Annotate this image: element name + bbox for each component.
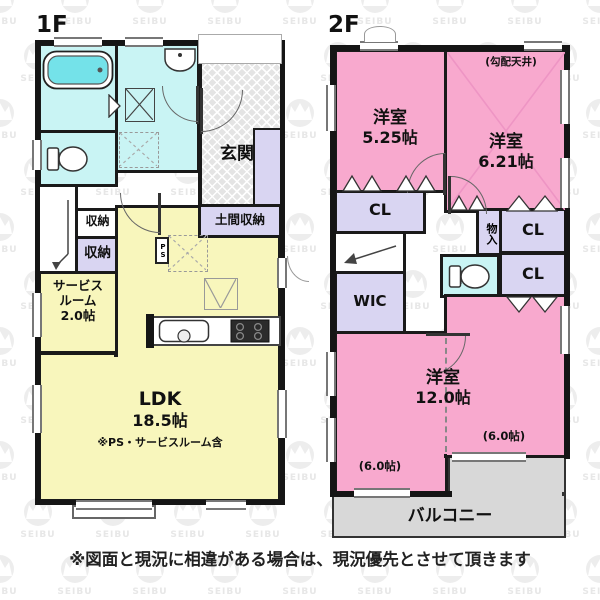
watermark-crest-icon <box>578 98 600 128</box>
watermark-crest-icon <box>0 0 22 14</box>
watermark-tile: SEIBU <box>428 0 472 27</box>
room3-sub-right: (6.0帖) <box>476 430 532 444</box>
window <box>277 390 287 438</box>
watermark-text: SEIBU <box>503 588 547 597</box>
service-room-line3: 2.0帖 <box>40 308 116 323</box>
watermark-text: SEIBU <box>578 246 600 255</box>
watermark-text: SEIBU <box>166 531 210 540</box>
room2-label: 洋室 6.21帖 <box>468 132 544 172</box>
watermark-text: SEIBU <box>16 531 60 540</box>
watermark-tile: SEIBU <box>278 0 322 27</box>
window <box>76 500 152 510</box>
watermark-text: SEIBU <box>128 588 172 597</box>
pipe-space: PS <box>155 237 169 264</box>
watermark-crest-icon <box>428 0 472 14</box>
storage2-label: 収納 <box>77 245 118 261</box>
watermark-crest-icon <box>0 98 22 128</box>
room3-label: 洋室 12.0帖 <box>398 368 488 408</box>
ldk-size: 18.5帖 <box>80 411 240 430</box>
watermark-text: SEIBU <box>203 588 247 597</box>
stairs-arrow-icon <box>44 192 74 272</box>
watermark-tile: SEIBU <box>578 440 600 483</box>
washbasin-icon <box>163 47 197 73</box>
watermark-tile: SEIBU <box>0 212 22 255</box>
watermark-text: SEIBU <box>0 588 22 597</box>
watermark-crest-icon <box>0 440 22 470</box>
watermark-text: SEIBU <box>0 246 22 255</box>
watermark-crest-icon <box>578 0 600 14</box>
window <box>326 418 336 462</box>
watermark-tile: SEIBU <box>578 0 600 27</box>
watermark-tile: SEIBU <box>203 0 247 27</box>
window <box>354 488 410 498</box>
watermark-text: SEIBU <box>578 360 600 369</box>
watermark-text: SEIBU <box>278 588 322 597</box>
ldk-label: LDK 18.5帖 ※PS・サービスルーム含 <box>80 388 240 449</box>
fridge-space-mark <box>168 235 208 272</box>
watermark-crest-icon <box>578 212 600 242</box>
room3-size: 12.0帖 <box>398 388 488 407</box>
window <box>206 500 246 510</box>
bath-door-icon <box>108 94 121 118</box>
room3-sub-left: (6.0帖) <box>352 460 408 474</box>
watermark-crest-icon <box>578 326 600 356</box>
room2-note: (勾配天井) <box>466 56 556 69</box>
stove-icon <box>230 319 270 343</box>
cl3-label: CL <box>501 264 565 283</box>
watermark-text: SEIBU <box>0 360 22 369</box>
watermark-text: SEIBU <box>503 18 547 27</box>
window <box>32 385 42 433</box>
watermark-crest-icon <box>578 440 600 470</box>
service-room-label: サービス ルーム 2.0帖 <box>40 278 116 323</box>
watermark-text: SEIBU <box>241 531 285 540</box>
bifold-door-icon <box>342 174 382 192</box>
window <box>560 70 570 124</box>
storage1-label: 収納 <box>77 214 118 228</box>
watermark-text: SEIBU <box>203 18 247 27</box>
window <box>560 306 570 354</box>
watermark-crest-icon <box>503 0 547 14</box>
service-room-line1: サービス <box>40 278 116 293</box>
back-door-opening <box>277 258 287 288</box>
watermark-tile: SEIBU <box>0 326 22 369</box>
watermark-crest-icon <box>0 212 22 242</box>
balcony-join <box>452 490 562 500</box>
porch <box>198 34 282 64</box>
watermark-text: SEIBU <box>0 132 22 141</box>
watermark-crest-icon <box>278 0 322 14</box>
watermark-tile: SEIBU <box>428 212 472 255</box>
watermark-tile: SEIBU <box>578 554 600 597</box>
bathtub-icon <box>42 50 114 90</box>
watermark-tile: SEIBU <box>578 326 600 369</box>
watermark-text: SEIBU <box>578 132 600 141</box>
table-mark <box>204 278 238 310</box>
disclaimer-text: ※図面と現況に相違がある場合は、現況優先とさせて頂きます <box>60 550 540 570</box>
window <box>32 140 42 170</box>
floor1-label: 1F <box>36 12 68 40</box>
watermark-tile: SEIBU <box>0 440 22 483</box>
window <box>326 352 336 396</box>
watermark-text: SEIBU <box>0 474 22 483</box>
watermark-text: SEIBU <box>428 18 472 27</box>
back-door-arc <box>287 256 309 282</box>
room1-size: 5.25帖 <box>352 128 428 147</box>
kitchen-sink-icon <box>158 319 210 343</box>
balcony-label: バルコニー <box>370 506 530 526</box>
cl2-label: CL <box>501 220 565 239</box>
watermark-text: SEIBU <box>278 18 322 27</box>
window <box>125 37 163 47</box>
room3-name: 洋室 <box>398 368 488 388</box>
stairs-arrow-icon <box>338 238 404 270</box>
watermark-tile: SEIBU <box>503 0 547 27</box>
watermark-crest-icon <box>578 554 600 584</box>
watermark-crest-icon <box>203 0 247 14</box>
counter-end-wall <box>146 314 154 348</box>
watermark-crest-icon <box>128 0 172 14</box>
room2-name: 洋室 <box>468 132 544 152</box>
window-bump <box>364 26 396 42</box>
watermark-tile: SEIBU <box>578 212 600 255</box>
genkan-label: 玄関 <box>203 144 271 164</box>
window <box>560 158 570 208</box>
watermark-tile: SEIBU <box>128 0 172 27</box>
bifold-door-icon <box>506 296 558 314</box>
bifold-door-icon <box>396 174 436 192</box>
bifold-door-icon <box>506 194 558 212</box>
window <box>326 85 336 131</box>
bifold-door-icon <box>450 194 486 211</box>
window <box>524 41 562 51</box>
cl1-label: CL <box>336 200 424 219</box>
watermark-crest-icon <box>428 212 472 242</box>
watermark-text: SEIBU <box>578 588 600 597</box>
window <box>452 452 526 462</box>
watermark-crest-icon <box>0 554 22 584</box>
watermark-text: SEIBU <box>353 588 397 597</box>
watermark-text: SEIBU <box>578 474 600 483</box>
floorplan-image: SEIBUSEIBUSEIBUSEIBUSEIBUSEIBUSEIBUSEIBU… <box>0 0 600 600</box>
service-room-line2: ルーム <box>40 293 116 308</box>
toilet-icon <box>46 140 92 178</box>
ldk-name: LDK <box>80 388 240 411</box>
room1-name: 洋室 <box>352 108 428 128</box>
washing-machine-icon <box>125 88 155 122</box>
watermark-text: SEIBU <box>428 588 472 597</box>
doma-label: 土間収納 <box>200 212 280 227</box>
watermark-crest-icon <box>0 326 22 356</box>
room1-label: 洋室 5.25帖 <box>352 108 428 148</box>
window <box>360 41 398 51</box>
toilet-icon <box>448 260 494 294</box>
watermark-tile: SEIBU <box>0 0 22 27</box>
watermark-text: SEIBU <box>53 588 97 597</box>
wic-label: WIC <box>336 292 404 310</box>
watermark-tile: SEIBU <box>0 98 22 141</box>
watermark-text: SEIBU <box>128 18 172 27</box>
ldk-note: ※PS・サービスルーム含 <box>80 436 240 449</box>
changing-area-mark <box>119 132 159 168</box>
watermark-tile: SEIBU <box>0 554 22 597</box>
room2-size: 6.21帖 <box>468 152 544 171</box>
watermark-text: SEIBU <box>578 18 600 27</box>
watermark-tile: SEIBU <box>578 98 600 141</box>
watermark-text: SEIBU <box>0 18 22 27</box>
watermark-text: SEIBU <box>91 531 135 540</box>
floor2-label: 2F <box>328 12 360 40</box>
